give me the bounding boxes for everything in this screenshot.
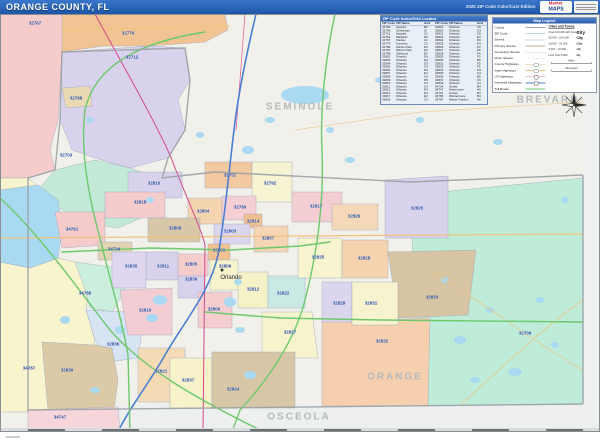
scale-bar-miles: Miles	[549, 59, 595, 66]
zip-index-column: ZIP CodeZIP NameGrid32703ApopkaB332709Ch…	[381, 22, 434, 102]
zip-index-table: ZIP Code Index/Grid Locator ZIP CodeZIP …	[380, 15, 488, 105]
scale-bars: MilesKilometers	[549, 59, 595, 73]
map-legend: Map Legend CountyZIP CodeStreetsPrimary …	[492, 17, 597, 93]
map-page: ORANGE COUNTY, FL 2020 ZIP Code Color/Ca…	[0, 0, 600, 442]
zip-index-row: 32818OrlandoC3	[381, 99, 434, 102]
edition-label: 2020 ZIP Code Color/Cast Edition	[466, 4, 536, 9]
logo-text-bottom: MAPS	[548, 7, 563, 12]
page-title: ORANGE COUNTY, FL	[6, 2, 110, 12]
zip-index-columns: ZIP CodeZIP NameGrid32703ApopkaB332709Ch…	[381, 22, 487, 102]
legend-row-toll-roads: Toll Roads	[495, 86, 549, 92]
compass-rose-icon	[561, 92, 587, 118]
publisher-mark	[574, 1, 598, 13]
title-bar: ORANGE COUNTY, FL 2020 ZIP Code Color/Ca…	[0, 0, 600, 14]
zip-index-column: ZIP CodeZIP NameGrid32819OrlandoC532820O…	[434, 22, 487, 102]
legend-city-size-row: Less than 5,000city	[549, 53, 595, 59]
legend-road-types: CountyZIP CodeStreetsPrimary StreetsSeco…	[495, 25, 549, 93]
logo-text-top: Market	[549, 2, 563, 6]
bottom-margin	[0, 432, 600, 442]
cities-header: Cities and Towns	[549, 25, 595, 29]
copyright-mark	[6, 436, 20, 438]
marketmaps-logo: Market MAPS	[540, 1, 572, 13]
scale-bar-kilometers: Kilometers	[549, 67, 595, 74]
legend-cities: Cities and Towns Over 100,000 with Stree…	[549, 25, 595, 93]
zip-index-row: 34787Winter GardenA6	[434, 99, 487, 102]
